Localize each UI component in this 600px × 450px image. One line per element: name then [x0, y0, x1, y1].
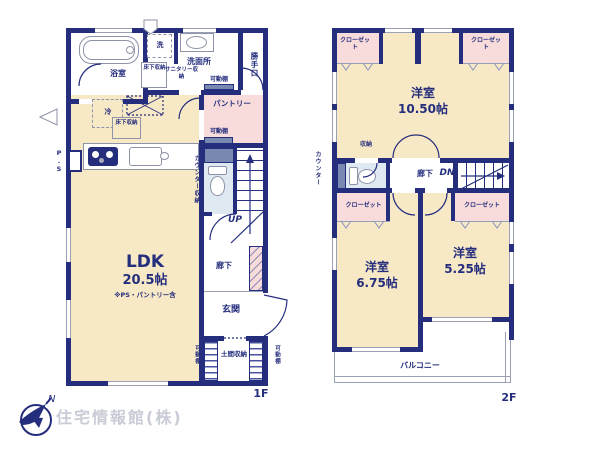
storage2-door-gap	[355, 158, 378, 163]
pipe-space-box	[68, 150, 82, 172]
window-top-left-2f	[385, 28, 412, 33]
floor2-tag: 2F	[494, 391, 524, 404]
stove-burner-2	[106, 151, 113, 158]
ldk-label: LDK	[105, 252, 185, 272]
closet-tr-open-edge	[463, 63, 509, 64]
window-room-left-wall	[332, 238, 337, 270]
washroom-door-gap	[179, 90, 201, 95]
entrance-step-line	[204, 291, 263, 292]
hallway-label-2f: 廊下	[413, 169, 437, 179]
window-top-right-2f	[424, 28, 452, 33]
toilet1-stairs-wall	[233, 148, 237, 214]
outer-wall-right-upper-1f	[263, 28, 268, 293]
stove-burner-3	[99, 158, 104, 163]
window-room-right-bottom	[432, 317, 492, 322]
fridge-label: 冷	[96, 108, 120, 116]
compass-icon: N	[12, 390, 60, 444]
bath-label: 浴室	[96, 69, 140, 79]
toilet2-hall-wall	[386, 163, 390, 193]
movable-shelf-label-b: 可動棚	[203, 128, 235, 135]
compass-wing	[31, 417, 43, 428]
closet-ml-right-wall	[386, 193, 390, 221]
lower-rooms-divider-wall	[418, 188, 423, 352]
entrance-door-arc	[264, 295, 287, 336]
wall-arrow-icon	[40, 109, 57, 125]
room-left-door-gap	[392, 188, 415, 193]
window-main-right-1	[509, 72, 514, 104]
kitchen-sink	[129, 147, 162, 166]
balcony-rail-bottom-outer	[334, 382, 511, 383]
closet-mr-left-wall	[451, 193, 455, 221]
sanitary-storage-label: サニタリー収納	[165, 67, 198, 80]
floor-plan-canvas: 浴室 洗 洗面所 床下収納 サニタリー収納 可動棚 勝手口 冷 床下収納 パント…	[0, 0, 600, 450]
closet-tr-side-wall	[459, 28, 463, 64]
closet-ml-open-edge	[337, 221, 390, 222]
balcony-label: バルコニー	[390, 361, 450, 371]
toilet2-tank	[349, 167, 358, 185]
room-right-door-gap	[425, 188, 447, 193]
compass-bird	[19, 404, 46, 425]
vanity-sink	[186, 36, 207, 49]
room-right-size-label: 5.25帖	[438, 262, 492, 276]
window-main-left-1	[332, 72, 337, 104]
backdoor-door-gap	[241, 90, 263, 95]
entrance-doma-wall-right	[246, 336, 268, 341]
balcony-rail-bottom-inner	[334, 376, 511, 377]
back-door-label: 勝手口	[246, 42, 258, 88]
closet-top-left-label: クローゼット	[340, 37, 370, 51]
compass-needle	[46, 398, 51, 404]
window-main-right-2	[509, 110, 514, 142]
room-main-size-label: 10.50帖	[394, 102, 452, 116]
room-left-label: 洋室	[352, 260, 402, 274]
dn-label: DN	[438, 168, 456, 179]
window-ldk-left-2	[66, 300, 71, 338]
kitchen-stove	[88, 147, 118, 166]
room-right-label: 洋室	[440, 246, 490, 260]
mid-wall-lower-2f	[332, 188, 514, 193]
room-main-label: 洋室	[398, 86, 448, 100]
counter-storage-label: カウンター収納	[188, 147, 199, 211]
pipe-space-label: P.S	[52, 149, 62, 173]
underfloor-storage-label-2: 床下収納	[114, 120, 139, 127]
compass-north: N	[48, 394, 56, 405]
ldk-note-label: ※PS・パントリー含	[102, 292, 188, 300]
ldk-size-label: 20.5帖	[105, 273, 185, 289]
floor1-tag: 1F	[246, 387, 276, 400]
stairs-1f	[237, 150, 263, 214]
stove-burner-1	[92, 151, 99, 158]
pantry-label: パントリー	[205, 99, 259, 108]
window-ldk-bottom	[108, 381, 168, 386]
closet-mid-left-label: クローゼット	[341, 202, 386, 209]
storage-label-2f: 収納	[353, 141, 379, 148]
window-room-right-2	[509, 252, 514, 284]
movable-shelf-label-a: 可動棚	[202, 76, 236, 83]
window-ldk-left-1	[66, 228, 71, 262]
closet-tl-side-wall	[379, 28, 383, 64]
closet-top-right-label: クローゼット	[471, 37, 501, 51]
entrance-doma-wall-left	[199, 336, 224, 341]
underfloor-storage-label-1: 床下収納	[143, 65, 166, 72]
toilet1-bowl	[210, 176, 225, 196]
doma-shelf-left	[204, 341, 218, 381]
window-main-left-2	[332, 110, 337, 142]
laundry-washroom-wall	[174, 28, 178, 64]
closet-top-divider-stub	[415, 28, 421, 64]
movable-shelf-label-d: 可動棚	[270, 340, 279, 370]
brand-watermark: 住宅情報館(株)	[56, 404, 183, 428]
bathtub-drain	[126, 46, 134, 54]
movable-shelf-label-c: 可動棚	[190, 340, 199, 370]
window-bath-top	[95, 28, 132, 33]
pantry-opening-gap	[199, 110, 204, 140]
doma-storage-label: 土間収納	[221, 351, 247, 359]
window-room-right-1	[509, 222, 514, 244]
toilet2-bowl	[358, 169, 376, 184]
hall-cabinet	[249, 246, 263, 291]
toilet1-tank	[208, 166, 227, 175]
washroom-label: 洗面所	[181, 57, 217, 67]
movable-shelf-board-b	[204, 137, 233, 144]
counter-label-2f: カウンター	[310, 143, 320, 193]
room-main-door-gap	[392, 158, 440, 163]
closet-mr-open-edge	[455, 221, 509, 222]
window-room-left-bottom	[352, 347, 400, 352]
outer-wall-top-2f	[332, 28, 514, 33]
closet-tl-open-edge	[337, 63, 379, 64]
entrance-label: 玄関	[212, 305, 250, 316]
up-label: UP	[221, 215, 249, 226]
toilet1-counter	[204, 148, 236, 163]
room-left-size-label: 6.75帖	[350, 276, 404, 290]
kitchen-faucet	[160, 152, 169, 160]
hallway-label-1f: 廊下	[208, 261, 240, 271]
balcony-rail-right	[505, 332, 506, 382]
balcony-rail-left	[334, 352, 335, 382]
movable-shelf-board-a	[204, 84, 234, 90]
closet-mid-right-label: クローゼット	[458, 202, 506, 209]
washroom-backdoor-wall	[238, 28, 243, 95]
laundry-label: 洗	[148, 41, 172, 49]
toilet1-door-stub	[204, 212, 212, 216]
outer-wall-right-lower-1f	[263, 337, 268, 386]
doma-shelf-right	[249, 341, 263, 381]
